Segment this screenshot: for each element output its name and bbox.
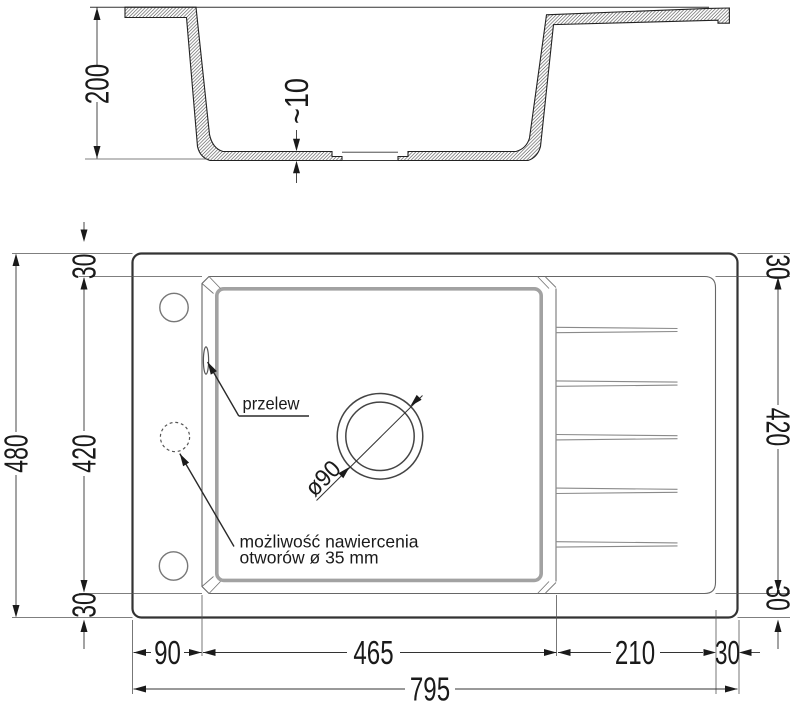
svg-text:420: 420 <box>65 434 102 472</box>
svg-text:przelew: przelew <box>243 394 300 414</box>
svg-text:210: 210 <box>615 634 655 671</box>
svg-text:30: 30 <box>65 254 102 280</box>
svg-text:30: 30 <box>760 585 797 611</box>
svg-text:420: 420 <box>760 408 797 446</box>
svg-text:30: 30 <box>715 634 740 671</box>
svg-text:90: 90 <box>154 634 181 671</box>
svg-text:200: 200 <box>78 64 115 104</box>
svg-text:30: 30 <box>65 592 102 618</box>
svg-text:30: 30 <box>760 254 797 280</box>
svg-text:otworów ø 35 mm: otworów ø 35 mm <box>240 548 379 568</box>
svg-text:~10: ~10 <box>278 78 315 124</box>
svg-text:795: 795 <box>410 670 450 707</box>
svg-text:465: 465 <box>353 634 393 671</box>
svg-text:480: 480 <box>0 434 34 472</box>
